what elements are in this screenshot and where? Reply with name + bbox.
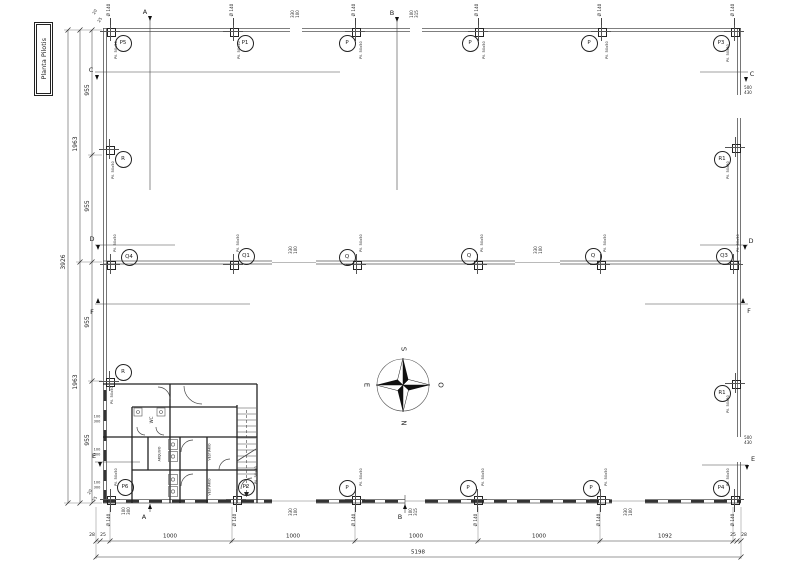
pillar-cross bbox=[233, 254, 234, 274]
pillar-tag: P2 bbox=[238, 479, 255, 496]
pillar-tag: Q3 bbox=[716, 248, 733, 265]
section-marker-letter: E bbox=[751, 456, 755, 463]
dim-label: 5198 bbox=[411, 550, 425, 556]
pillar-type-label: Pil. 50x50 bbox=[238, 41, 242, 59]
pillar-diameter-label: Ø 140 bbox=[107, 4, 111, 17]
dim-label: 25 bbox=[100, 534, 106, 539]
pillar-square bbox=[352, 28, 361, 37]
compass-letter-east: E bbox=[363, 383, 370, 387]
dim-label: 300 bbox=[94, 486, 101, 490]
pillar-type-label: Pil. 50x50 bbox=[727, 44, 731, 62]
section-marker-letter: A bbox=[142, 514, 146, 521]
pillar-square bbox=[106, 146, 115, 155]
section-marker-arrow-up bbox=[403, 504, 407, 509]
dim-label: 1000 bbox=[286, 534, 300, 540]
pillar-type-label: Pil. 50x50 bbox=[727, 395, 731, 413]
section-marker-letter: A bbox=[143, 9, 147, 16]
pillar-tag: P bbox=[462, 35, 479, 52]
diameter-leader bbox=[110, 18, 111, 25]
section-marker-arrow-up bbox=[741, 298, 745, 303]
section-marker-arrow-up bbox=[148, 504, 152, 509]
dim-label: 100 bbox=[94, 481, 101, 485]
pillar-type-label: Pil. 50x50 bbox=[482, 468, 486, 486]
compass-rose bbox=[376, 358, 430, 412]
pillar-diameter-label: Ø 140 bbox=[230, 4, 234, 17]
dim-label: 1092 bbox=[658, 534, 672, 540]
diameter-leader bbox=[734, 505, 735, 512]
pillar-cross bbox=[733, 254, 734, 274]
pillar-diameter-label: Ø 140 bbox=[475, 4, 479, 17]
dim-label: 28 bbox=[89, 534, 95, 539]
pillar-type-label: Pil. 50x50 bbox=[360, 234, 364, 252]
pillar-square bbox=[233, 496, 242, 505]
pillar-type-label: Pil. 50x50 bbox=[115, 468, 119, 486]
diameter-leader bbox=[478, 18, 479, 25]
dim-label: 1963 bbox=[73, 136, 79, 151]
compass-letter-north: N bbox=[400, 420, 407, 425]
pillar-tag: Q bbox=[585, 248, 602, 265]
pillar-tag: Q bbox=[339, 249, 356, 266]
pillar-square bbox=[230, 28, 239, 37]
dim-label: 100 bbox=[629, 508, 633, 516]
pillar-type-label: Pil. 50x50 bbox=[237, 234, 241, 252]
pillar-type-label: Pil. 50x50 bbox=[255, 466, 259, 484]
compass-letter-west: O bbox=[437, 382, 444, 388]
dim-label: 300 bbox=[127, 507, 131, 515]
pillar-square bbox=[731, 496, 740, 505]
title-block: Planta Pilotis bbox=[36, 24, 51, 94]
dim-label: 3926 bbox=[61, 254, 67, 269]
pillar-cross bbox=[110, 254, 111, 274]
pillar-diameter-label: Ø 140 bbox=[107, 514, 111, 527]
pillar-diameter-label: Ø 140 bbox=[474, 514, 478, 527]
section-marker-arrow-down bbox=[744, 77, 748, 82]
diameter-leader bbox=[355, 18, 356, 25]
pillar-type-label: Pil. 50x50 bbox=[606, 41, 610, 59]
section-marker-letter: D bbox=[89, 236, 94, 243]
pillar-tag: R bbox=[115, 151, 132, 168]
dim-label: 100 bbox=[296, 10, 300, 18]
pillar-square bbox=[107, 28, 116, 37]
pillar-cross bbox=[109, 139, 110, 159]
room-label: ARQUIVO bbox=[158, 447, 161, 462]
pillar-square bbox=[230, 261, 239, 270]
section-marker-arrow-down bbox=[743, 245, 747, 250]
dim-label: 1000 bbox=[163, 534, 177, 540]
compass-letter-south: S bbox=[400, 347, 407, 351]
pillar-tag: P6 bbox=[117, 479, 134, 496]
title-block-text: Planta Pilotis bbox=[40, 38, 48, 80]
dim-label: 1963 bbox=[73, 374, 79, 389]
dim-label: 1000 bbox=[532, 534, 546, 540]
dim-label: 28 bbox=[741, 534, 747, 539]
pillar-tag: R bbox=[115, 364, 132, 381]
pillar-tag: P bbox=[583, 480, 600, 497]
pillar-diameter-label: Ø 140 bbox=[352, 514, 356, 527]
diameter-leader bbox=[233, 18, 234, 25]
dim-label: 100 bbox=[294, 246, 298, 254]
pillar-type-label: Pil. 50x50 bbox=[112, 161, 116, 179]
dim-label: 955 bbox=[85, 200, 91, 211]
pillar-tag: Q4 bbox=[121, 249, 138, 266]
pillar-type-label: Pil. 50x50 bbox=[360, 41, 364, 59]
pillar-diameter-label: Ø 140 bbox=[233, 514, 237, 527]
section-marker-letter: E bbox=[92, 453, 96, 460]
section-marker-arrow-up bbox=[96, 298, 100, 303]
pillar-square bbox=[475, 28, 484, 37]
section-marker-letter: D bbox=[748, 238, 753, 245]
pillar-square bbox=[107, 261, 116, 270]
dim-label: 100 bbox=[294, 508, 298, 516]
pillar-tag: Q bbox=[461, 248, 478, 265]
pillar-type-label: Pil. 50x50 bbox=[114, 234, 118, 252]
pillar-square bbox=[107, 496, 116, 505]
dim-label: 25 bbox=[730, 534, 736, 539]
dim-label: 1000 bbox=[409, 534, 423, 540]
diameter-leader bbox=[236, 505, 237, 512]
dim-label: 315 bbox=[415, 10, 419, 18]
dim-label: 300 bbox=[94, 420, 101, 424]
pillar-diameter-label: Ø 140 bbox=[731, 514, 735, 527]
section-marker-letter: B bbox=[390, 10, 394, 17]
section-marker-arrow-down bbox=[98, 462, 102, 467]
diameter-leader bbox=[110, 505, 111, 512]
diameter-leader bbox=[477, 505, 478, 512]
dim-label: 430 bbox=[744, 91, 752, 95]
dim-label: 955 bbox=[85, 434, 91, 445]
pillar-diameter-label: Ø 140 bbox=[731, 4, 735, 17]
dim-label: 955 bbox=[85, 84, 91, 95]
diameter-leader bbox=[355, 505, 356, 512]
dim-label: 430 bbox=[744, 441, 752, 445]
dim-label: 315 bbox=[414, 508, 418, 516]
pillar-type-label: Pil. 50x50 bbox=[483, 41, 487, 59]
section-marker-letter: F bbox=[747, 308, 751, 315]
pillar-square bbox=[597, 496, 606, 505]
section-marker-arrow-down bbox=[745, 465, 749, 470]
pillar-cross bbox=[735, 373, 736, 393]
dim-label: 100 bbox=[94, 415, 101, 419]
section-marker-arrow-down bbox=[395, 17, 399, 22]
section-marker-arrow-down bbox=[95, 75, 99, 80]
pillar-type-label: Pil. 50x50 bbox=[727, 161, 731, 179]
section-marker-arrow-down bbox=[96, 245, 100, 250]
pillar-square bbox=[732, 380, 741, 389]
diameter-leader bbox=[734, 18, 735, 25]
dim-label: 955 bbox=[85, 316, 91, 327]
pillar-tag: P bbox=[581, 35, 598, 52]
pillar-square bbox=[731, 28, 740, 37]
floor-plan-canvas: Planta Pilotis S O N E 39261963196395595… bbox=[0, 0, 800, 564]
pillar-square bbox=[732, 144, 741, 153]
pillar-cross bbox=[735, 137, 736, 157]
room-label: VESTIÁRIO bbox=[208, 444, 211, 461]
pillar-type-label: Pil. 50x50 bbox=[737, 234, 741, 252]
pillar-square bbox=[474, 496, 483, 505]
pillar-type-label: Pil. 50x50 bbox=[115, 41, 119, 59]
pillar-type-label: Pil. 50x50 bbox=[727, 468, 731, 486]
section-marker-letter: F bbox=[90, 309, 94, 316]
pillar-diameter-label: Ø 140 bbox=[598, 4, 602, 17]
pillar-cross bbox=[356, 254, 357, 274]
pillar-type-label: Pil. 50x50 bbox=[481, 234, 485, 252]
diameter-leader bbox=[601, 18, 602, 25]
pillar-tag: P bbox=[339, 480, 356, 497]
pillar-tag: P bbox=[339, 35, 356, 52]
pillar-type-label: Pil. 50x50 bbox=[111, 386, 115, 404]
section-marker-letter: C bbox=[750, 71, 755, 78]
diameter-leader bbox=[600, 505, 601, 512]
pillar-diameter-label: Ø 140 bbox=[352, 4, 356, 17]
section-marker-arrow-down bbox=[148, 16, 152, 21]
room-label: WC bbox=[150, 417, 154, 424]
section-marker-letter: C bbox=[89, 67, 94, 74]
pillar-diameter-label: Ø 140 bbox=[597, 514, 601, 527]
pillar-type-label: Pil. 50x50 bbox=[360, 468, 364, 486]
dim-label: 100 bbox=[539, 246, 543, 254]
pillar-tag: P bbox=[460, 480, 477, 497]
section-marker-letter: B bbox=[398, 514, 402, 521]
pillar-type-label: Pil. 50x50 bbox=[604, 234, 608, 252]
room-label: VESTIÁRIO bbox=[208, 479, 211, 496]
pillar-square bbox=[598, 28, 607, 37]
pillar-square bbox=[352, 496, 361, 505]
pillar-type-label: Pil. 50x50 bbox=[605, 468, 609, 486]
